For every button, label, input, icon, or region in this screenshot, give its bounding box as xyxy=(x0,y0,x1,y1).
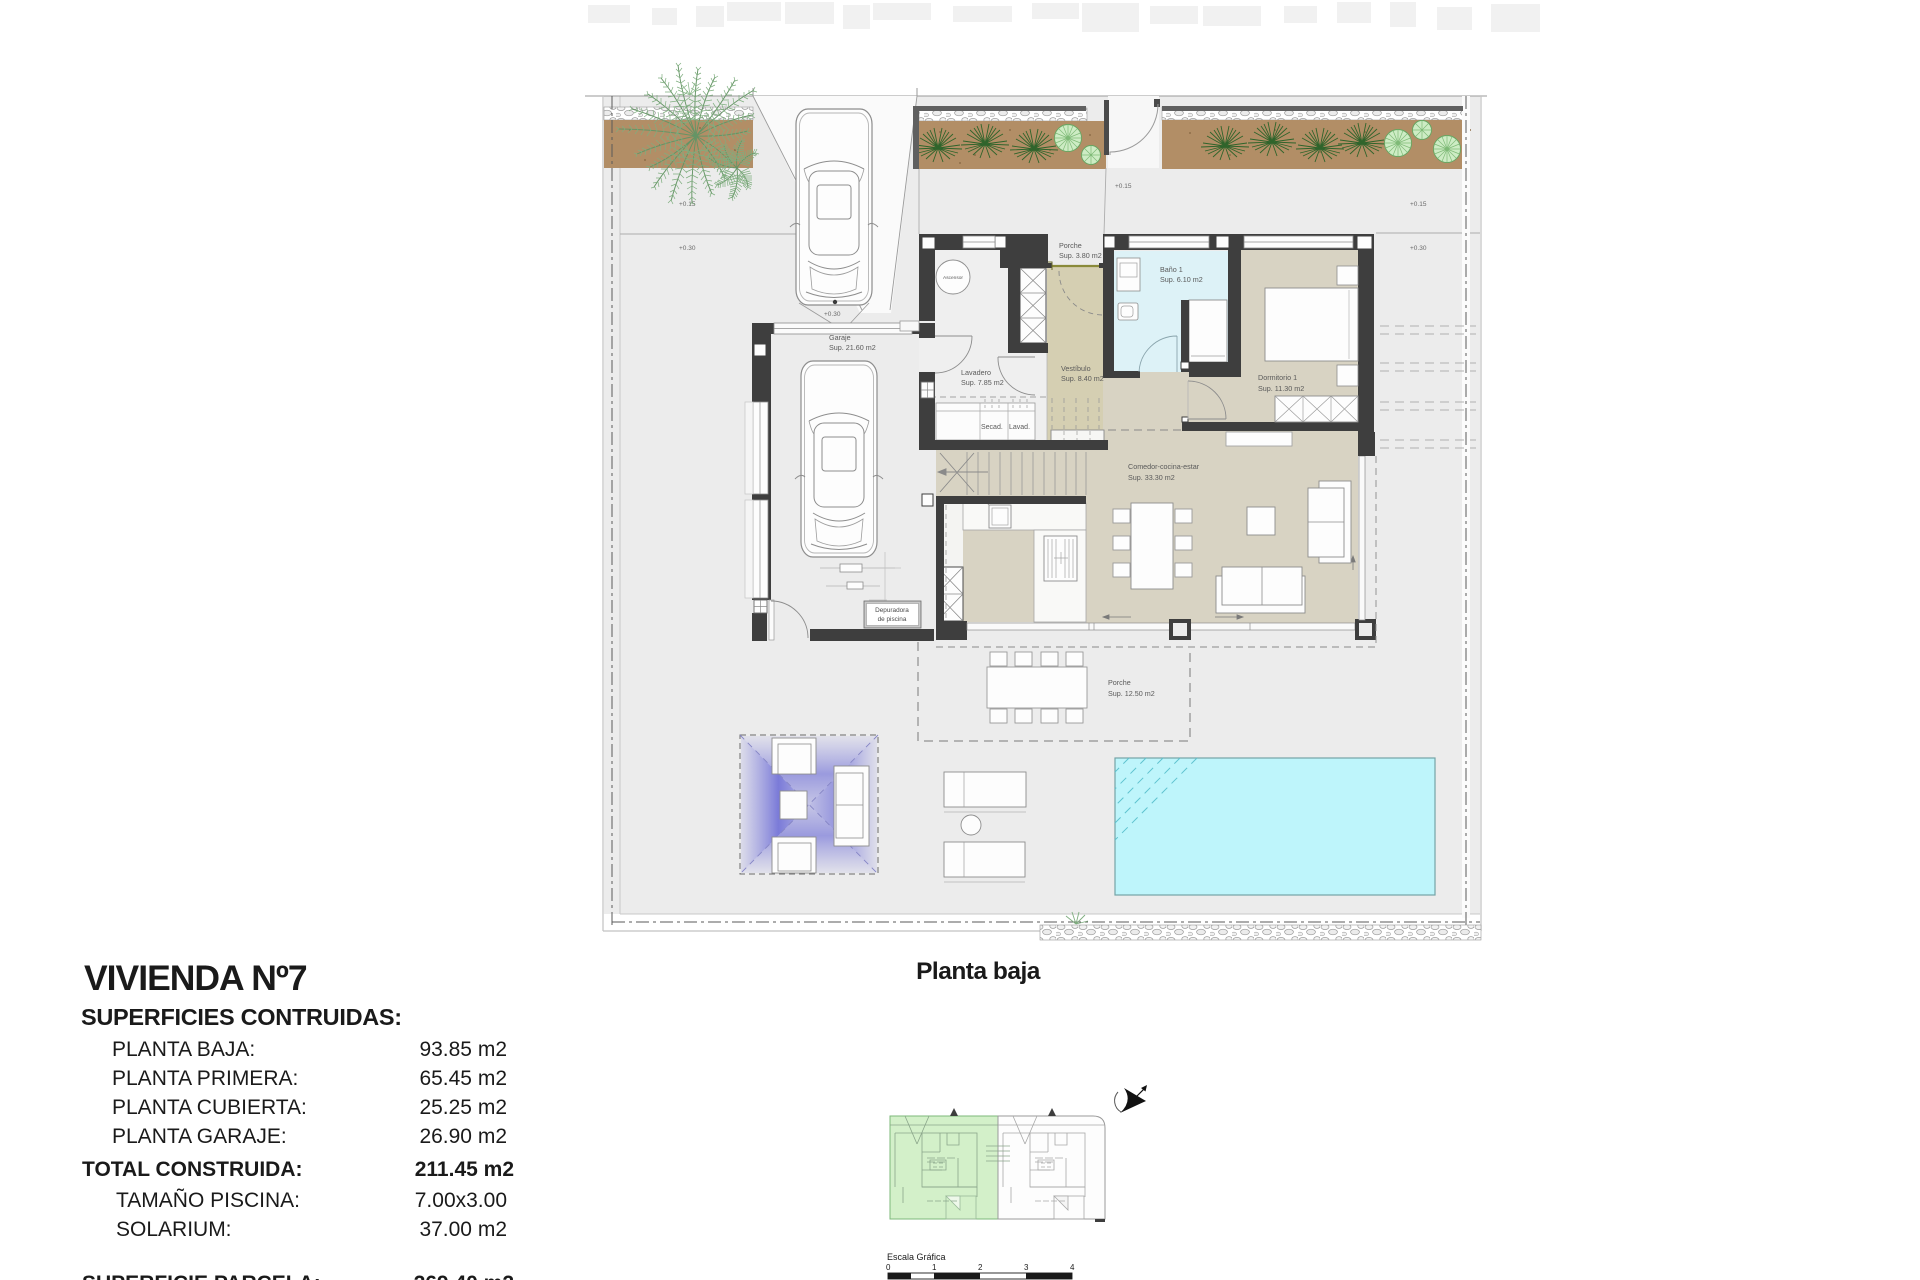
svg-text:+0.15: +0.15 xyxy=(1115,183,1132,190)
svg-text:SOLARIUM:: SOLARIUM: xyxy=(116,1218,232,1241)
svg-text:PLANTA BAJA:: PLANTA BAJA: xyxy=(112,1038,255,1061)
svg-text:25.25 m2: 25.25 m2 xyxy=(419,1096,507,1119)
svg-text:Porche: Porche xyxy=(1059,241,1082,250)
svg-text:Sup. 21.60 m2: Sup. 21.60 m2 xyxy=(829,343,876,352)
svg-text:Baño 1: Baño 1 xyxy=(1160,265,1183,274)
svg-text:26.90 m2: 26.90 m2 xyxy=(419,1125,507,1148)
svg-text:PLANTA GARAJE:: PLANTA GARAJE: xyxy=(112,1125,287,1148)
svg-text:Sup. 8.40 m2: Sup. 8.40 m2 xyxy=(1061,374,1104,383)
svg-text:0: 0 xyxy=(886,1263,891,1272)
svg-text:Dormitorio 1: Dormitorio 1 xyxy=(1258,373,1297,382)
svg-text:269.40 m2: 269.40 m2 xyxy=(414,1272,514,1280)
svg-text:Sup. 3.80 m2: Sup. 3.80 m2 xyxy=(1059,251,1102,260)
svg-text:+0.30: +0.30 xyxy=(824,311,841,318)
svg-text:de piscina: de piscina xyxy=(878,616,907,623)
svg-text:4: 4 xyxy=(1070,1263,1075,1272)
svg-text:Ascensor: Ascensor xyxy=(943,275,963,281)
svg-text:65.45 m2: 65.45 m2 xyxy=(419,1067,507,1090)
svg-text:Depuradora: Depuradora xyxy=(875,607,909,614)
svg-text:PLANTA PRIMERA:: PLANTA PRIMERA: xyxy=(112,1067,298,1090)
svg-text:Lavad.: Lavad. xyxy=(1009,424,1030,431)
svg-text:Lavadero: Lavadero xyxy=(961,368,991,377)
svg-text:+0.15: +0.15 xyxy=(679,201,696,208)
svg-text:3: 3 xyxy=(1024,1263,1029,1272)
svg-text:PLANTA CUBIERTA:: PLANTA CUBIERTA: xyxy=(112,1096,307,1119)
svg-text:+0.30: +0.30 xyxy=(679,245,696,252)
svg-text:7.00x3.00: 7.00x3.00 xyxy=(415,1189,507,1212)
svg-text:Sup. 12.50 m2: Sup. 12.50 m2 xyxy=(1108,689,1155,698)
svg-text:SUPERFICIES CONTRUIDAS:: SUPERFICIES CONTRUIDAS: xyxy=(81,1004,402,1030)
svg-text:Porche: Porche xyxy=(1108,678,1131,687)
svg-text:1: 1 xyxy=(932,1263,937,1272)
svg-text:Garaje: Garaje xyxy=(829,333,851,342)
svg-text:SUPERFICIE PARCELA:: SUPERFICIE PARCELA: xyxy=(82,1272,321,1280)
svg-text:Planta baja: Planta baja xyxy=(916,958,1041,985)
svg-text:211.45 m2: 211.45 m2 xyxy=(415,1158,514,1181)
svg-text:Escala Gráfica: Escala Gráfica xyxy=(887,1252,946,1262)
svg-text:+0.15: +0.15 xyxy=(1410,201,1427,208)
svg-text:Sup. 11.30 m2: Sup. 11.30 m2 xyxy=(1258,384,1304,393)
svg-text:Secad.: Secad. xyxy=(981,424,1003,431)
svg-text:Vestíbulo: Vestíbulo xyxy=(1061,364,1091,373)
svg-text:TAMAÑO PISCINA:: TAMAÑO PISCINA: xyxy=(116,1188,300,1212)
svg-text:Comedor-cocina-estar: Comedor-cocina-estar xyxy=(1128,462,1200,471)
svg-text:VIVIENDA Nº7: VIVIENDA Nº7 xyxy=(84,958,307,998)
svg-text:93.85 m2: 93.85 m2 xyxy=(419,1038,507,1061)
svg-text:2: 2 xyxy=(978,1263,983,1272)
svg-text:+0.30: +0.30 xyxy=(1410,245,1427,252)
svg-text:TOTAL CONSTRUIDA:: TOTAL CONSTRUIDA: xyxy=(82,1158,303,1181)
svg-text:37.00 m2: 37.00 m2 xyxy=(419,1218,507,1241)
svg-text:Sup. 33.30 m2: Sup. 33.30 m2 xyxy=(1128,473,1175,482)
svg-text:Sup. 7.85 m2: Sup. 7.85 m2 xyxy=(961,378,1004,387)
svg-text:Sup. 6.10 m2: Sup. 6.10 m2 xyxy=(1160,275,1203,284)
